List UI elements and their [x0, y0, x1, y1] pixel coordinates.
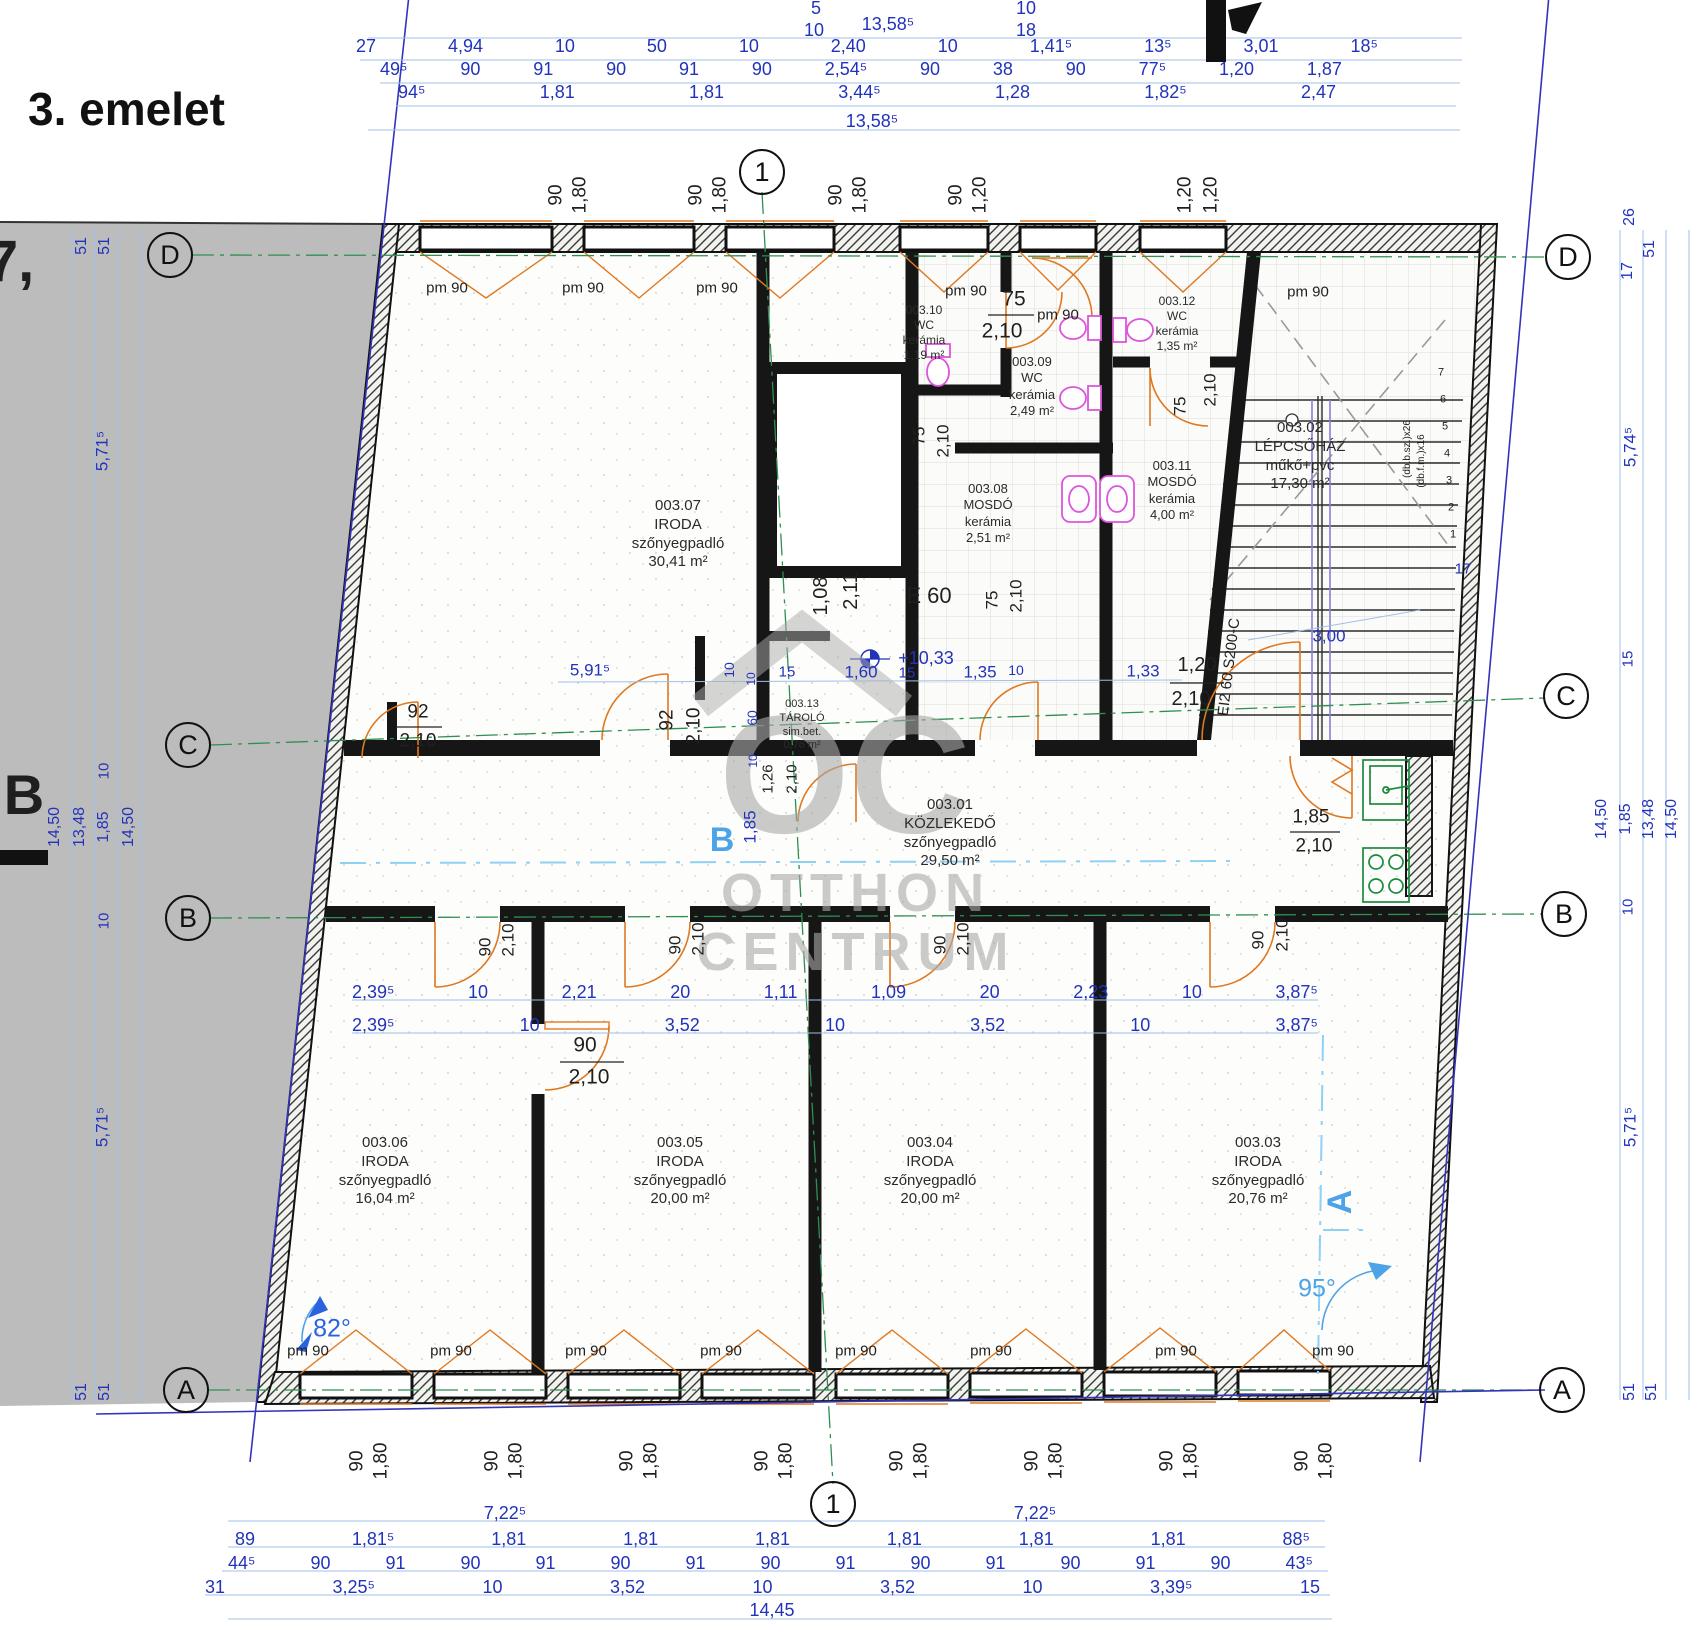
dim-label: 2,10: [785, 764, 800, 793]
room-floor: kerámia: [1156, 324, 1199, 339]
axis-row-c-left: C: [165, 722, 211, 768]
stair-step-number: 7: [1438, 368, 1444, 379]
dim-value: 77⁵: [1139, 60, 1166, 78]
room-label-003.08: 003.08MOSDÓkerámia2,51 m²: [963, 481, 1012, 546]
room-id: 003.11: [1147, 458, 1196, 474]
dim-value: 90: [760, 1554, 780, 1572]
door-size: 1,85: [1293, 808, 1330, 827]
dim-value: 10: [752, 1578, 772, 1596]
door-size: 75: [1002, 289, 1025, 310]
dim-label: 5,71⁵: [94, 1107, 111, 1147]
window-dim: 1,80: [777, 1443, 796, 1480]
room-label-003.06: 003.06IRODAszőnyegpadló16,04 m²: [339, 1134, 432, 1209]
dim-label: 5,91⁵: [570, 662, 610, 679]
parapet-label: pm 90: [1155, 1344, 1197, 1359]
axis-row-a-right: A: [1539, 1367, 1585, 1413]
dim-value: 15: [1300, 1578, 1320, 1596]
window-dim: 90: [618, 1450, 637, 1471]
parapet-label: pm 90: [700, 1344, 742, 1359]
window-dim: 90: [1158, 1450, 1177, 1471]
room-name: IRODA: [1212, 1153, 1305, 1172]
dim-value: 10: [938, 37, 958, 55]
dim-label: 26: [1622, 208, 1638, 226]
room-floor: szőnyegpadló: [339, 1172, 432, 1191]
dim-label: 5,74⁵: [1622, 427, 1639, 467]
door-size: 2,10: [1172, 689, 1211, 709]
window-dim: 1,20: [1176, 177, 1195, 214]
dim-value: 1,81: [491, 1530, 526, 1548]
room-floor: kerámia: [1009, 387, 1055, 403]
room-id: 003.01: [904, 796, 997, 815]
dim-value: 1,81: [1019, 1530, 1054, 1548]
room-area: 2,51 m²: [963, 530, 1012, 546]
dim-value: 27: [356, 37, 376, 55]
dim-value: 3,87⁵: [1275, 983, 1318, 1001]
room-area: 30,41 m²: [632, 553, 725, 572]
dim-label: 10: [722, 662, 736, 678]
dim-label: 5,71⁵: [1622, 1107, 1639, 1147]
dim-value: 90: [920, 60, 940, 78]
room-floor: szőnyegpadló: [904, 834, 997, 853]
window-dim: 1,80: [507, 1443, 526, 1480]
dim-label: 51: [1644, 1383, 1660, 1401]
room-area: 1,19 m²: [903, 348, 946, 363]
window-dim: 90: [687, 184, 706, 205]
dim-label: 1,33: [1126, 663, 1159, 680]
parapet-label: pm 90: [970, 1344, 1012, 1359]
dim-label: 1,35: [963, 664, 996, 681]
dim-value: 49⁵: [380, 60, 407, 78]
room-floor: szőnyegpadló: [632, 535, 725, 554]
room-label-003.07: 003.07IRODAszőnyegpadló30,41 m²: [632, 497, 725, 572]
axis-col-top: 1: [739, 149, 785, 195]
window-dim: 90: [827, 184, 846, 205]
dim-value: 1,81⁵: [352, 1530, 395, 1548]
window-dim: 1,80: [642, 1443, 661, 1480]
room-name: KÖZLEKEDŐ: [904, 815, 997, 834]
dim-value: 2,39⁵: [352, 1016, 395, 1034]
dim-label: 60: [745, 710, 759, 726]
room-area: 16,04 m²: [339, 1190, 432, 1209]
dim-value: 50: [647, 37, 667, 55]
room-name: WC: [1009, 370, 1055, 386]
dim-value: 10: [1130, 1016, 1150, 1034]
dim-value: 20: [670, 983, 690, 1001]
room-id: 003.08: [963, 481, 1012, 497]
stair-note: (db.b.sz.)x26: [1403, 420, 1413, 478]
dim-value: 90: [310, 1554, 330, 1572]
room-name: IRODA: [339, 1153, 432, 1172]
stair-step-number: 4: [1444, 449, 1450, 460]
room-label-003.04: 003.04IRODAszőnyegpadló20,00 m²: [884, 1134, 977, 1209]
room-area: 20,00 m²: [634, 1190, 727, 1209]
dim-label: 1,26: [761, 764, 776, 793]
room-id: 003.07: [632, 497, 725, 516]
room-label-003.09: 003.09WCkerámia2,49 m²: [1009, 354, 1055, 419]
room-floor: szőnyegpadló: [1212, 1172, 1305, 1191]
dim-value: 1,81: [540, 83, 575, 101]
dim-value: 1,41⁵: [1030, 37, 1073, 55]
dim-label: 51: [74, 237, 90, 255]
dim-value: 90: [752, 60, 772, 78]
dim-value: 91: [533, 60, 553, 78]
angle-label: 82°: [313, 1317, 351, 1342]
dim-value: 10: [482, 1578, 502, 1596]
door-size: 1,20: [1178, 655, 1217, 675]
section-letter-b: B: [4, 767, 44, 823]
dim-label: 5: [811, 0, 821, 17]
dim-value: 31: [205, 1578, 225, 1596]
room-label-003.05: 003.05IRODAszőnyegpadló20,00 m²: [634, 1134, 727, 1209]
dim-label: 10: [747, 754, 759, 767]
room-area: 4,00 m²: [1147, 507, 1196, 523]
window-dim: 90: [348, 1450, 367, 1471]
dim-value: 1,81: [887, 1530, 922, 1548]
room-area: 20,00 m²: [884, 1190, 977, 1209]
door-size: 2,10: [400, 732, 437, 751]
room-floor: kerámia: [963, 514, 1012, 530]
dim-value: 3,52: [880, 1578, 915, 1596]
room-id: 003.05: [634, 1134, 727, 1153]
dim-label: 10: [97, 913, 112, 930]
room-label-003.03: 003.03IRODAszőnyegpadló20,76 m²: [1212, 1134, 1305, 1209]
room-area: 0,76 m²: [779, 739, 824, 753]
axis-row-d-right: D: [1545, 234, 1591, 280]
dim-value: 1,81: [755, 1530, 790, 1548]
dim-label: 13,48: [72, 807, 88, 847]
dim-label: 13,48: [1641, 799, 1657, 839]
axis-row-b-right: B: [1541, 891, 1587, 937]
dim-value: 91: [985, 1554, 1005, 1572]
dim-value: 90: [606, 60, 626, 78]
room-label-003.01: 003.01KÖZLEKEDŐszőnyegpadló29,50 m²: [904, 796, 997, 871]
dim-value: 10: [555, 37, 575, 55]
stair-step-number: 3: [1446, 476, 1452, 487]
door-size: 2,10: [500, 923, 517, 956]
room-floor: sim.bet.: [779, 726, 824, 740]
dim-value: 2,40: [831, 37, 866, 55]
dim-value: 1,28: [995, 83, 1030, 101]
room-label-003.02: 003.02LÉPCSŐHÁZműkő+pvc17,30 m²: [1255, 419, 1346, 494]
window-dim: 1,80: [711, 177, 730, 214]
dim-value: 90: [1066, 60, 1086, 78]
room-floor: kerámia: [1147, 491, 1196, 507]
parapet-label: pm 90: [562, 281, 604, 296]
dim-value: 3,39⁵: [1150, 1578, 1193, 1596]
room-name: MOSDÓ: [1147, 474, 1196, 490]
room-id: 003.06: [339, 1134, 432, 1153]
door-size: 2,10: [982, 321, 1023, 342]
stair-step-number: 5: [1442, 422, 1448, 433]
dim-label: 51: [97, 1383, 113, 1401]
window-dim: 90: [1293, 1450, 1312, 1471]
dim-value: 10: [1182, 983, 1202, 1001]
dim-label: 51: [1622, 1383, 1638, 1401]
door-size: 90: [667, 936, 684, 955]
dim-chain-bottom_row1: 7,22⁵7,22⁵: [240, 1504, 1300, 1522]
dim-value: 7,22⁵: [1014, 1504, 1057, 1522]
door-size: 90: [477, 938, 494, 957]
dim-label: 14,50: [1664, 799, 1680, 839]
window-dim: 1,20: [971, 177, 990, 214]
room-name: LÉPCSŐHÁZ: [1255, 438, 1346, 457]
dim-chain-bottom_row3: 44⁵9091909190919091909190919043⁵: [228, 1554, 1313, 1572]
window-dim: 90: [753, 1450, 772, 1471]
dim-value: 7,22⁵: [484, 1504, 527, 1522]
annotation-layer: 51013,58⁵101813,58⁵14,4551515,71⁵1014,50…: [0, 0, 1708, 1639]
room-area: 2,49 m²: [1009, 403, 1055, 419]
dim-value: 2,54⁵: [825, 60, 868, 78]
floor-plan: OC OTTHON CENTRUM 3. emelet 51013,58⁵101…: [0, 0, 1708, 1639]
parapet-label: pm 90: [1312, 1344, 1354, 1359]
dim-value: 3,44⁵: [838, 83, 881, 101]
dim-value: 91: [679, 60, 699, 78]
door-size: 2,10: [1008, 579, 1025, 612]
dim-bottom-total: 14,45: [749, 1601, 794, 1619]
window-dim: 90: [547, 184, 566, 205]
dim-value: 90: [1210, 1554, 1230, 1572]
dim-value: 4,94: [448, 37, 483, 55]
dim-top-total: 13,58⁵: [846, 112, 899, 130]
dim-value: 10: [520, 1016, 540, 1034]
door-size: 2,10: [569, 1067, 610, 1088]
room-id: 003.10: [903, 303, 946, 318]
axis-row-a-left: A: [163, 1367, 209, 1413]
parapet-label: pm 90: [835, 1344, 877, 1359]
fire-door-label: EI2 60 S200-C: [1216, 617, 1243, 717]
dim-label: 17: [1455, 562, 1472, 577]
door-size: 92: [658, 709, 677, 730]
door-size: 75: [1172, 397, 1189, 416]
parapet-label: pm 90: [287, 1344, 329, 1359]
dim-value: 1,11: [764, 983, 798, 1001]
room-area: 1,35 m²: [1156, 339, 1199, 354]
dim-value: 3,52: [665, 1016, 700, 1034]
dim-chain-bottom_row4: 313,25⁵103,52103,52103,39⁵15: [205, 1578, 1320, 1596]
dim-value: 91: [835, 1554, 855, 1572]
dim-value: 43⁵: [1285, 1554, 1312, 1572]
window-dim: 1,80: [1047, 1443, 1066, 1480]
dim-label: 14,50: [47, 807, 63, 847]
door-size: 75: [911, 427, 928, 446]
room-name: IRODA: [884, 1153, 977, 1172]
axis-row-c-right: C: [1543, 673, 1589, 719]
door-size: 90: [1250, 931, 1267, 950]
dim-chain-mid_b1: 2,39⁵102,21201,111,09202,23103,87⁵: [352, 983, 1318, 1001]
dim-value: 3,52: [610, 1578, 645, 1596]
dim-value: 90: [610, 1554, 630, 1572]
dim-chain-top_row3: 94⁵1,811,813,44⁵1,281,82⁵2,47: [398, 83, 1336, 101]
door-size: 2,10: [935, 424, 952, 457]
dim-value: 1,81: [623, 1530, 658, 1548]
room-floor: műkő+pvc: [1255, 457, 1346, 476]
dim-value: 90: [460, 1554, 480, 1572]
dim-value: 2,47: [1301, 83, 1336, 101]
dim-label: 15: [779, 665, 796, 680]
dim-value: 20: [980, 983, 1000, 1001]
dim-value: 18⁵: [1351, 37, 1378, 55]
window-dim: 1,20: [1202, 177, 1221, 214]
dim-value: 10: [1023, 1578, 1043, 1596]
dim-label: 51: [74, 1383, 90, 1401]
dim-chain-bottom_row2: 891,81⁵1,811,811,811,811,811,8188⁵: [235, 1530, 1310, 1548]
room-id: 003.02: [1255, 419, 1346, 438]
room-name: IRODA: [634, 1153, 727, 1172]
dim-label: 51: [97, 237, 113, 255]
dim-label: 1,85: [1618, 803, 1634, 834]
section-marker-a: A: [1323, 1190, 1357, 1215]
elevation-label: +10,33: [898, 649, 954, 667]
dim-value: 91: [535, 1554, 555, 1572]
dim-value: 1,81: [1151, 1530, 1186, 1548]
stair-step-number: 2: [1448, 503, 1454, 514]
dim-label: 1,85: [742, 810, 759, 843]
door-size: 2,10: [1202, 373, 1219, 406]
dim-value: 1,09: [871, 983, 906, 1001]
door-size: 90: [932, 936, 949, 955]
dim-value: 90: [1060, 1554, 1080, 1572]
window-dim: 90: [483, 1450, 502, 1471]
dim-value: 10: [825, 1016, 845, 1034]
dim-label: 1,08: [811, 577, 831, 616]
dim-value: 44⁵: [228, 1554, 255, 1572]
room-floor: kerámia: [903, 333, 946, 348]
window-dim: 1,80: [851, 177, 870, 214]
window-dim: 1,80: [1182, 1443, 1201, 1480]
window-dim: 1,80: [912, 1443, 931, 1480]
room-id: 003.09: [1009, 354, 1055, 370]
room-name: MOSDÓ: [963, 497, 1012, 513]
room-floor: szőnyegpadló: [634, 1172, 727, 1191]
parapet-label: pm 90: [426, 281, 468, 296]
room-id: 003.13: [779, 698, 824, 712]
door-size: 2,10: [685, 708, 704, 745]
room-id: 003.04: [884, 1134, 977, 1153]
shaft-label: E 60: [906, 585, 951, 607]
room-name: WC: [1156, 309, 1199, 324]
dim-value: 3,01: [1244, 37, 1279, 55]
door-size: 2,10: [1274, 918, 1291, 951]
room-area: 20,76 m²: [1212, 1190, 1305, 1209]
door-size: 2,10: [955, 922, 972, 955]
stair-step-number: 1: [1450, 530, 1456, 541]
window-dim: 90: [888, 1450, 907, 1471]
dim-value: 38: [993, 60, 1013, 78]
parapet-label: pm 90: [1287, 285, 1329, 300]
dim-value: 1,81: [689, 83, 724, 101]
dim-value: 94⁵: [398, 83, 425, 101]
window-dim: 90: [947, 184, 966, 205]
axis-col-bottom: 1: [810, 1481, 856, 1527]
dim-label: 14,50: [121, 807, 137, 847]
room-area: 29,50 m²: [904, 852, 997, 871]
room-name: WC: [903, 318, 946, 333]
angle-label: 95°: [1298, 1277, 1336, 1302]
dim-label: 10: [1621, 899, 1636, 916]
room-label-003.13: 003.13TÁROLÓsim.bet.0,76 m²: [779, 698, 824, 753]
dim-value: 89: [235, 1530, 255, 1548]
parapet-label: pm 90: [696, 281, 738, 296]
door-size: 2,10: [1296, 837, 1333, 856]
door-size: 92: [407, 703, 428, 722]
axis-row-b-left: B: [165, 895, 211, 941]
dim-value: 3,87⁵: [1275, 1016, 1318, 1034]
stair-note: (db.f.m.)x16: [1417, 434, 1427, 487]
dim-value: 2,23: [1073, 983, 1108, 1001]
room-floor: szőnyegpadló: [884, 1172, 977, 1191]
room-label-003.10: 003.10WCkerámia1,19 m²: [903, 303, 946, 363]
dim-value: 90: [910, 1554, 930, 1572]
window-dim: 1,80: [571, 177, 590, 214]
parapet-label: pm 90: [1037, 308, 1079, 323]
dim-chain-mid_b2: 2,39⁵103,52103,52103,87⁵: [352, 1016, 1318, 1034]
dim-value: 2,39⁵: [352, 983, 395, 1001]
door-size: 90: [573, 1035, 596, 1056]
dim-label: 10: [745, 672, 757, 685]
dim-label: 1,60: [844, 664, 877, 681]
dim-label: 13,58⁵: [862, 15, 915, 33]
dim-chain-top_row2: 49⁵90919091902,54⁵90389077⁵1,201,87: [380, 60, 1342, 78]
dim-value: 1,82⁵: [1144, 83, 1187, 101]
dim-value: 13⁵: [1144, 37, 1171, 55]
dim-label: 1,85: [96, 811, 112, 842]
room-name: TÁROLÓ: [779, 712, 824, 726]
dim-value: 3,52: [970, 1016, 1005, 1034]
dim-label: 51: [1642, 240, 1658, 258]
axis-row-d-left: D: [147, 232, 193, 278]
dim-label: 5,71⁵: [94, 431, 111, 471]
door-size: 2,10: [690, 922, 707, 955]
dim-label: 2,11: [841, 572, 861, 609]
dim-chain-top_row1: 274,941050102,40101,41⁵13⁵3,0118⁵: [356, 37, 1378, 55]
room-id: 003.12: [1156, 294, 1199, 309]
dim-value: 10: [468, 983, 488, 1001]
dim-value: 91: [385, 1554, 405, 1572]
room-id: 003.03: [1212, 1134, 1305, 1153]
room-label-003.11: 003.11MOSDÓkerámia4,00 m²: [1147, 458, 1196, 523]
dim-value: 3,25⁵: [333, 1578, 376, 1596]
parapet-label: pm 90: [565, 1344, 607, 1359]
window-dim: 90: [1023, 1450, 1042, 1471]
dim-value: 91: [1135, 1554, 1155, 1572]
dim-label: 17: [1620, 262, 1636, 280]
dim-value: 88⁵: [1282, 1530, 1309, 1548]
stair-step-number: 6: [1440, 395, 1446, 406]
door-size: 75: [984, 591, 1001, 610]
parapet-label: pm 90: [945, 284, 987, 299]
section-marker-b: B: [710, 823, 735, 857]
window-dim: 1,80: [1317, 1443, 1336, 1480]
dim-value: 10: [739, 37, 759, 55]
dim-value: 91: [685, 1554, 705, 1572]
dim-value: 90: [460, 60, 480, 78]
window-dim: 1,80: [372, 1443, 391, 1480]
dim-label: 10: [1008, 663, 1024, 677]
dim-label: 10: [1016, 0, 1036, 17]
room-label-003.12: 003.12WCkerámia1,35 m²: [1156, 294, 1199, 354]
dim-value: 1,87: [1307, 60, 1342, 78]
room-name: IRODA: [632, 516, 725, 535]
dim-label: 14,50: [1594, 799, 1610, 839]
cropped-glyph: 7,: [0, 233, 34, 291]
dim-value: 2,21: [562, 983, 597, 1001]
dim-label: 15: [1621, 651, 1636, 668]
room-area: 17,30 m²: [1255, 475, 1346, 494]
dim-label: 3,00: [1312, 628, 1345, 645]
dim-value: 1,20: [1219, 60, 1254, 78]
dim-label: 10: [97, 763, 112, 780]
parapet-label: pm 90: [430, 1344, 472, 1359]
